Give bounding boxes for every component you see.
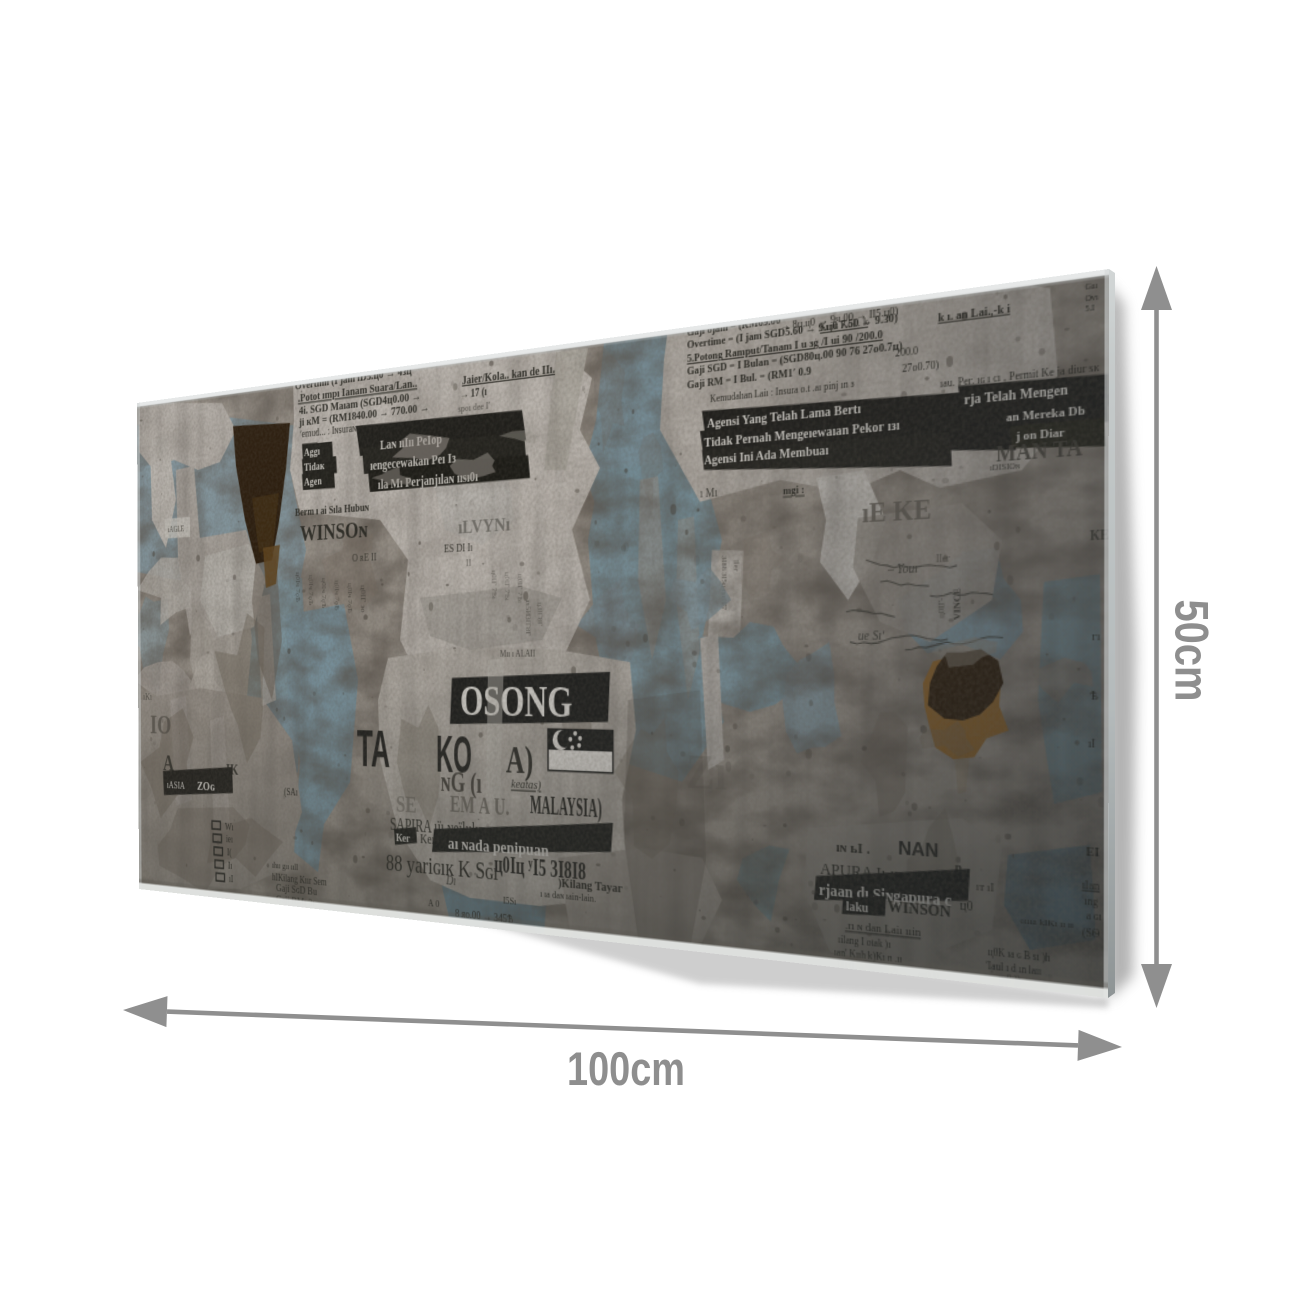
svg-text:100cm: 100cm	[567, 1042, 685, 1095]
svg-text:50cm: 50cm	[1166, 600, 1219, 702]
